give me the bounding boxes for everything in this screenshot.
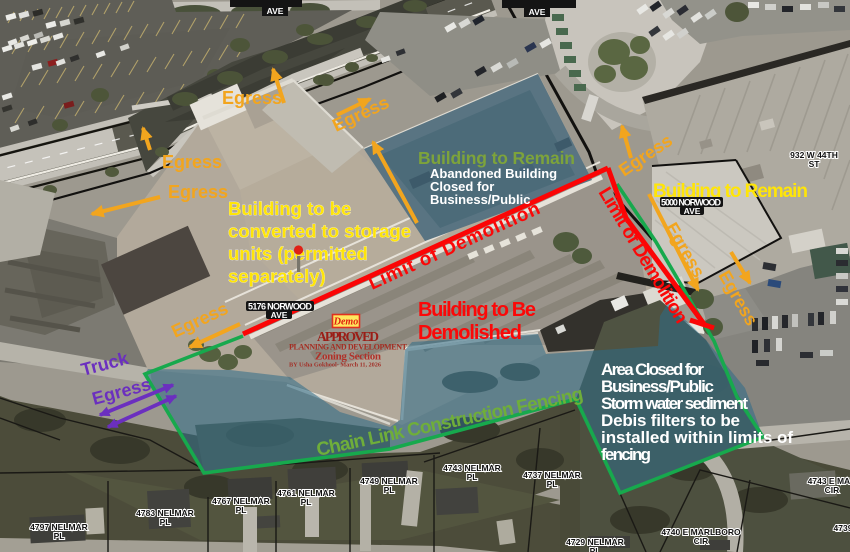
svg-text:PL: PL <box>54 531 65 541</box>
svg-text:Business/Public: Business/Public <box>430 192 530 207</box>
svg-text:Building to be: Building to be <box>228 198 351 219</box>
svg-text:Demo: Demo <box>333 317 358 328</box>
svg-text:AVE: AVE <box>267 6 284 16</box>
svg-text:CIR: CIR <box>825 485 840 495</box>
svg-text:PL: PL <box>160 517 171 527</box>
svg-text:ST: ST <box>809 159 821 169</box>
svg-text:PL: PL <box>467 472 478 482</box>
svg-text:fencing: fencing <box>601 445 651 464</box>
svg-text:Demolished: Demolished <box>418 322 522 344</box>
svg-text:AVE: AVE <box>271 310 288 320</box>
svg-text:BY Usha Gokhool- March 11, 202: BY Usha Gokhool- March 11, 2026 <box>289 362 381 369</box>
svg-text:PL: PL <box>590 546 601 552</box>
svg-text:PL: PL <box>301 497 312 507</box>
svg-text:4739: 4739 <box>834 523 850 533</box>
svg-text:Building to Be: Building to Be <box>418 299 536 321</box>
svg-text:AVE: AVE <box>684 206 701 216</box>
svg-text:AVE: AVE <box>529 7 546 17</box>
svg-text:separately): separately) <box>228 266 326 287</box>
svg-text:Egress: Egress <box>162 152 222 172</box>
svg-text:Egress: Egress <box>168 182 228 202</box>
svg-text:PL: PL <box>236 505 247 515</box>
svg-text:Egress: Egress <box>222 88 282 108</box>
svg-text:Building to Remain: Building to Remain <box>418 148 575 168</box>
svg-text:PL: PL <box>384 485 395 495</box>
svg-text:CIR: CIR <box>694 536 709 546</box>
svg-text:converted to storage: converted to storage <box>228 221 411 242</box>
svg-text:PL: PL <box>547 479 558 489</box>
